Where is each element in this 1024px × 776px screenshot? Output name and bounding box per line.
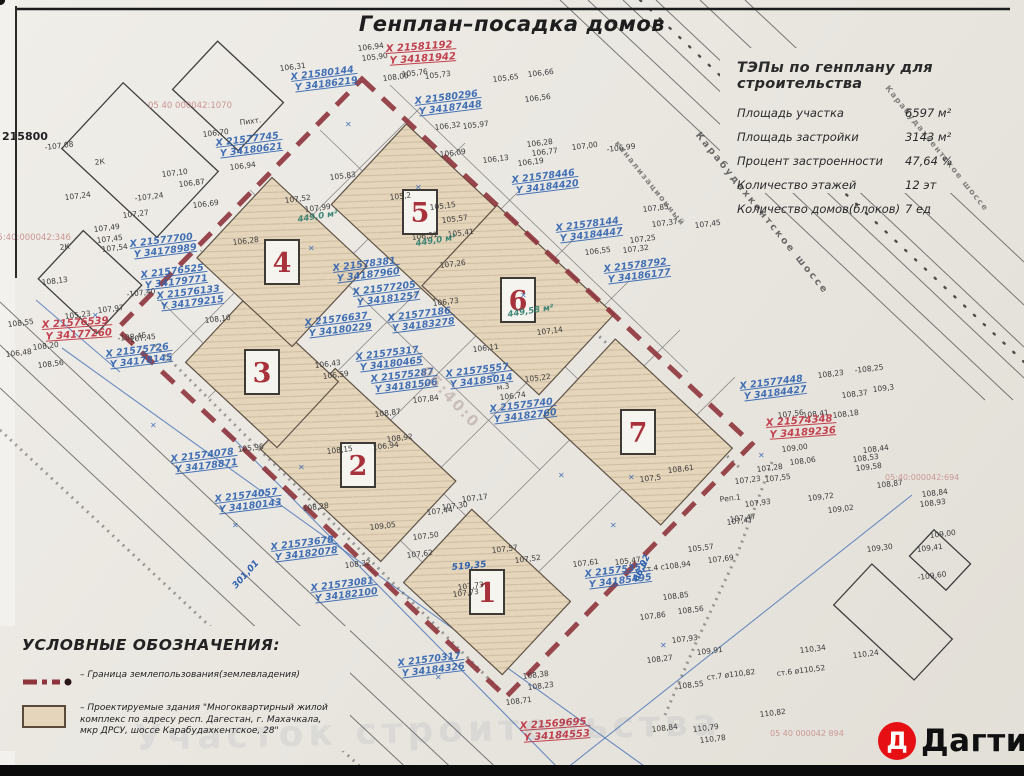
- survey-cross-mark: ✕: [610, 521, 617, 530]
- survey-cross-mark: ✕: [758, 451, 765, 460]
- tep-row-label: Количество этажей: [737, 178, 905, 192]
- elevation-label: 2К: [59, 242, 71, 252]
- bottom-scan-bar: [0, 765, 1024, 776]
- map-label: 05:40:000042:694: [885, 473, 959, 482]
- svg-text:✕: ✕: [435, 673, 442, 682]
- svg-text:✕: ✕: [660, 641, 667, 650]
- svg-text:✕: ✕: [232, 521, 239, 530]
- svg-text:2К: 2К: [94, 157, 106, 167]
- svg-text:✕: ✕: [610, 521, 617, 530]
- building-number: 5: [411, 198, 430, 229]
- survey-cross-mark: ✕: [92, 311, 99, 320]
- tep-row-value: 7 ед: [905, 202, 1022, 216]
- tep-row: Процент застроенности 47,64 %: [737, 154, 1022, 168]
- survey-cross-mark: ✕: [150, 421, 157, 430]
- tep-row-label: Площадь участка: [737, 106, 905, 120]
- legend: УСЛОВНЫЕ ОБОЗНАЧЕНИЯ: – Граница землепол…: [22, 636, 342, 750]
- svg-text:✕: ✕: [490, 371, 497, 380]
- tep-row: Площадь застройки 3143 м²: [737, 130, 1022, 144]
- svg-text:✕: ✕: [628, 473, 635, 482]
- tep-table: ТЭПы по генплану для строительства Площа…: [737, 60, 1022, 226]
- map-label: 05 40 000042:1070: [148, 101, 232, 111]
- tep-row: Количество домов(блоков) 7 ед: [737, 202, 1022, 216]
- legend-title: УСЛОВНЫЕ ОБОЗНАЧЕНИЯ:: [22, 636, 342, 654]
- svg-text:✕: ✕: [345, 120, 352, 129]
- svg-text:05:40:000042:346: 05:40:000042:346: [0, 233, 71, 243]
- tep-row-value: 3143 м²: [905, 130, 1022, 144]
- map-label: 215800: [2, 130, 48, 143]
- svg-text:✕: ✕: [758, 451, 765, 460]
- svg-text:05:40:000042:694: 05:40:000042:694: [885, 473, 959, 482]
- svg-text:05 40 000042 894: 05 40 000042 894: [770, 729, 844, 738]
- logo-icon: Д: [878, 722, 916, 760]
- survey-cross-mark: ✕: [232, 521, 239, 530]
- svg-text:✕: ✕: [150, 421, 157, 430]
- tep-row-value: 6597 м²: [905, 106, 1022, 120]
- svg-text:2К: 2К: [59, 242, 71, 252]
- elevation-label: 2К: [94, 157, 106, 167]
- tep-title: ТЭПы по генплану для строительства: [737, 60, 1022, 92]
- svg-text:✕: ✕: [308, 244, 315, 253]
- survey-cross-mark: ✕: [628, 473, 635, 482]
- building-number: 2: [349, 451, 368, 482]
- svg-text:215800: 215800: [2, 130, 48, 143]
- survey-cross-mark: ✕: [490, 371, 497, 380]
- svg-text:✕: ✕: [558, 471, 565, 480]
- tep-row-label: Количество домов(блоков): [737, 202, 905, 216]
- survey-cross-mark: ✕: [345, 120, 352, 129]
- page-title: Генплан–посадка домов: [0, 12, 1024, 36]
- building-number: 4: [273, 248, 292, 279]
- building-swatch: [22, 703, 80, 732]
- svg-text:✕: ✕: [415, 183, 422, 192]
- svg-text:✕: ✕: [520, 291, 527, 300]
- legend-building-text: – Проектируемые здания "Многоквартирный …: [80, 703, 342, 738]
- svg-text:05 40 000042:1070: 05 40 000042:1070: [148, 101, 232, 111]
- tep-row: Площадь участка 6597 м²: [737, 106, 1022, 120]
- tep-row-value: 12 эт: [905, 178, 1022, 192]
- survey-cross-mark: ✕: [298, 463, 305, 472]
- survey-cross-mark: ✕: [415, 183, 422, 192]
- map-label: 05:40:000042:346: [0, 233, 71, 243]
- survey-cross-mark: ✕: [520, 291, 527, 300]
- survey-cross-mark: ✕: [660, 641, 667, 650]
- watermark-logo: Д Дагти: [878, 722, 1024, 760]
- legend-boundary-text: – Граница землепользования(землевладения…: [80, 670, 300, 682]
- svg-text:✕: ✕: [298, 463, 305, 472]
- building-number: 3: [253, 358, 272, 389]
- tep-row-label: Процент застроенности: [737, 154, 905, 168]
- survey-cross-mark: ✕: [558, 471, 565, 480]
- survey-cross-mark: ✕: [435, 673, 442, 682]
- survey-cross-mark: ✕: [308, 244, 315, 253]
- building-number: 7: [629, 418, 648, 449]
- tep-row-value: 47,64 %: [905, 154, 1022, 168]
- legend-item-boundary: – Граница землепользования(землевладения…: [22, 670, 342, 691]
- tep-row: Количество этажей 12 эт: [737, 178, 1022, 192]
- map-label: 05 40 000042 894: [770, 729, 844, 738]
- logo-name: Дагти: [921, 723, 1024, 759]
- legend-item-building: – Проектируемые здания "Многоквартирный …: [22, 703, 342, 738]
- tep-row-label: Площадь застройки: [737, 130, 905, 144]
- svg-text:✕: ✕: [92, 311, 99, 320]
- genplan-sheet: 1234567 -107,08 107,24 -107,24 107,27 10…: [0, 0, 1024, 776]
- boundary-line-symbol: [22, 670, 80, 691]
